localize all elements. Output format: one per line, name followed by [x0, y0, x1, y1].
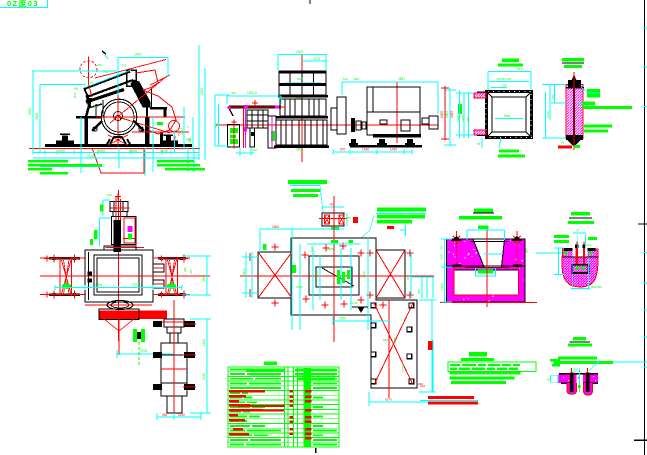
- svg-text:510: 510: [107, 193, 112, 197]
- svg-text:1675: 1675: [393, 337, 397, 344]
- svg-text:1500: 1500: [440, 253, 444, 260]
- svg-text:1503.5: 1503.5: [247, 91, 257, 95]
- svg-text:451: 451: [186, 138, 192, 142]
- svg-text:650: 650: [346, 216, 351, 220]
- svg-text:1675: 1675: [401, 365, 405, 372]
- svg-text:1985: 1985: [450, 111, 454, 118]
- svg-text:350: 350: [406, 275, 410, 280]
- svg-text:230: 230: [252, 148, 257, 152]
- svg-text:240: 240: [420, 384, 425, 388]
- svg-text:2848: 2848: [35, 113, 39, 120]
- svg-text:2550: 2550: [339, 317, 346, 321]
- svg-text:Ø25: Ø25: [73, 92, 77, 98]
- svg-text:2550: 2550: [129, 149, 137, 153]
- svg-text:1200: 1200: [440, 283, 444, 290]
- svg-text:40: 40: [547, 377, 551, 381]
- svg-text:250: 250: [97, 63, 102, 67]
- svg-text:2040: 2040: [28, 108, 32, 115]
- svg-text:1600: 1600: [272, 225, 279, 229]
- svg-text:5482: 5482: [296, 285, 303, 289]
- svg-text:6175: 6175: [385, 398, 392, 402]
- svg-text:350x350: 350x350: [591, 285, 602, 289]
- svg-text:1575: 1575: [313, 57, 320, 61]
- svg-text:770: 770: [121, 64, 126, 68]
- svg-text:160: 160: [88, 81, 93, 85]
- svg-text:1646: 1646: [310, 245, 314, 252]
- svg-text:350: 350: [466, 117, 470, 122]
- svg-text:1460: 1460: [92, 105, 99, 109]
- svg-text:1430: 1430: [362, 148, 369, 152]
- svg-text:1292: 1292: [180, 128, 184, 135]
- svg-text:2000: 2000: [362, 271, 366, 278]
- svg-text:150: 150: [103, 70, 108, 74]
- svg-text:1190: 1190: [160, 149, 168, 153]
- svg-text:1440: 1440: [202, 373, 206, 380]
- svg-text:31.5: 31.5: [517, 67, 523, 71]
- svg-text:1980: 1980: [461, 115, 465, 122]
- svg-text:670: 670: [340, 148, 346, 152]
- svg-text:M48: M48: [504, 114, 510, 118]
- svg-text:650: 650: [525, 248, 529, 253]
- svg-text:650: 650: [417, 289, 421, 294]
- svg-text:3200: 3200: [95, 283, 102, 287]
- svg-text:280: 280: [354, 77, 359, 81]
- svg-text:35: 35: [477, 142, 481, 146]
- svg-text:3200: 3200: [315, 271, 319, 278]
- svg-text:1640: 1640: [546, 111, 550, 118]
- svg-text:3554: 3554: [296, 148, 303, 152]
- svg-text:2867: 2867: [398, 77, 405, 81]
- svg-text:2120: 2120: [456, 115, 460, 122]
- svg-text:0Z废03: 0Z废03: [7, 0, 39, 8]
- svg-text:5500: 5500: [242, 268, 246, 275]
- svg-text:415: 415: [189, 269, 193, 274]
- svg-text:1440: 1440: [202, 339, 206, 346]
- svg-text:740: 740: [329, 203, 334, 207]
- svg-text:2595: 2595: [200, 88, 204, 95]
- svg-text:M48: M48: [297, 77, 303, 81]
- svg-text:+0.00: +0.00: [350, 301, 358, 305]
- svg-text:380: 380: [183, 267, 187, 272]
- svg-text:2500: 2500: [202, 275, 206, 282]
- svg-text:450: 450: [231, 91, 236, 95]
- svg-text:1667: 1667: [134, 53, 142, 57]
- svg-text:1430: 1430: [390, 148, 397, 152]
- svg-text:150: 150: [440, 245, 444, 250]
- svg-text:75: 75: [561, 141, 565, 145]
- svg-text:2985: 2985: [327, 247, 334, 251]
- svg-text:780: 780: [215, 123, 219, 128]
- svg-text:290: 290: [502, 84, 507, 88]
- svg-text:750: 750: [173, 135, 177, 141]
- svg-text:2000: 2000: [296, 50, 303, 54]
- svg-text:75: 75: [576, 229, 580, 233]
- svg-text:140: 140: [343, 77, 348, 81]
- svg-text:2550: 2550: [97, 149, 105, 153]
- svg-text:250: 250: [551, 94, 555, 99]
- svg-text:1140: 1140: [178, 413, 185, 417]
- svg-text:1900: 1900: [57, 149, 65, 153]
- svg-text:1700: 1700: [132, 283, 139, 287]
- svg-text:1802: 1802: [445, 111, 449, 118]
- svg-text:∅: ∅: [187, 125, 190, 129]
- svg-text:450: 450: [162, 413, 168, 417]
- svg-text:M6: M6: [74, 87, 78, 91]
- svg-text:M.8: M.8: [587, 243, 592, 247]
- svg-text:7100: 7100: [87, 155, 95, 159]
- svg-text:740*D=740: 740*D=740: [496, 77, 511, 81]
- svg-text:2705: 2705: [140, 349, 147, 353]
- svg-text:650: 650: [383, 338, 388, 342]
- svg-text:1000: 1000: [440, 111, 444, 118]
